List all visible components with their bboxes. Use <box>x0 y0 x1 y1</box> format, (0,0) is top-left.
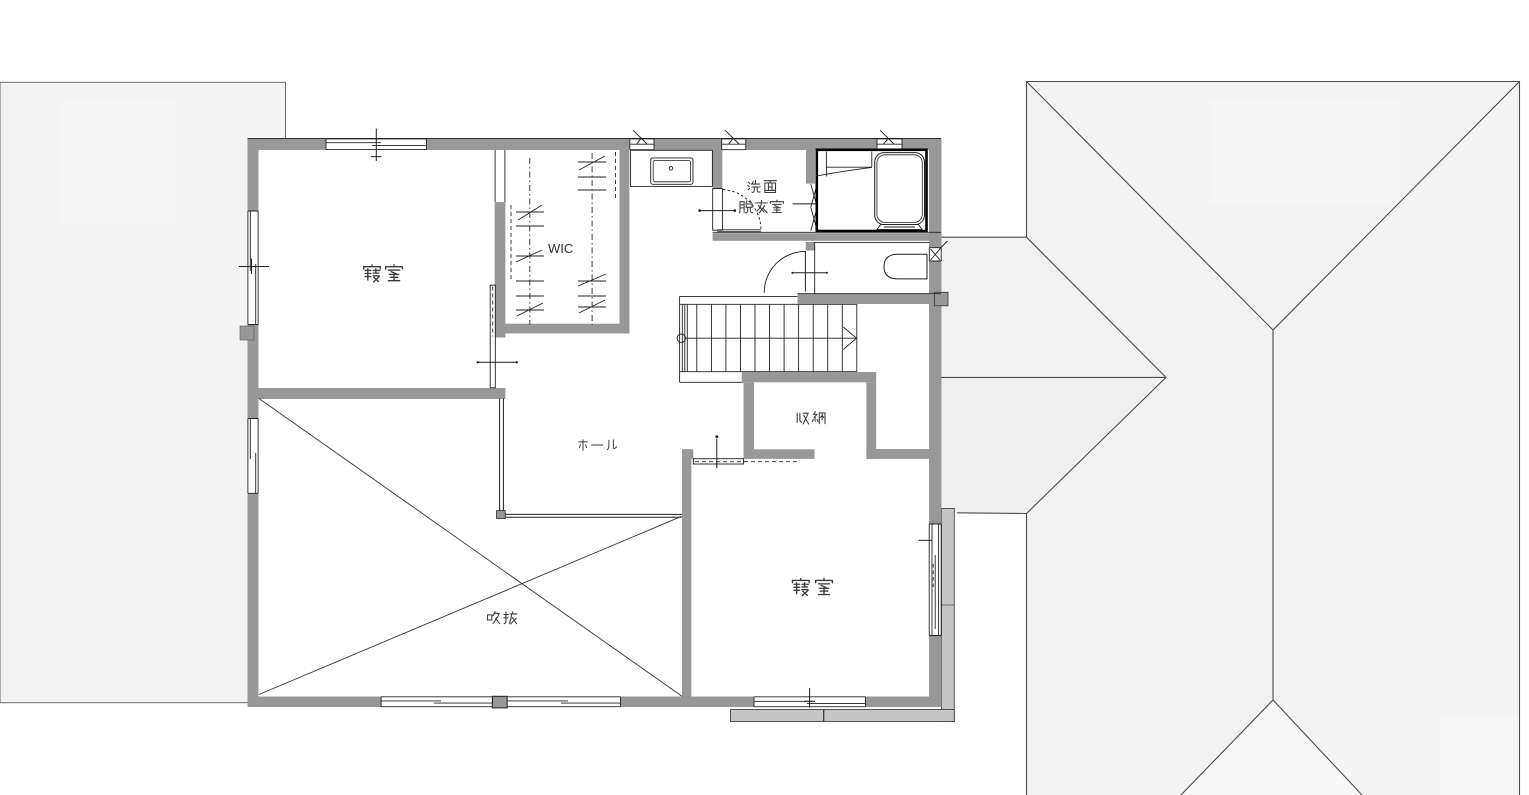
svg-text:WIC: WIC <box>548 241 573 256</box>
